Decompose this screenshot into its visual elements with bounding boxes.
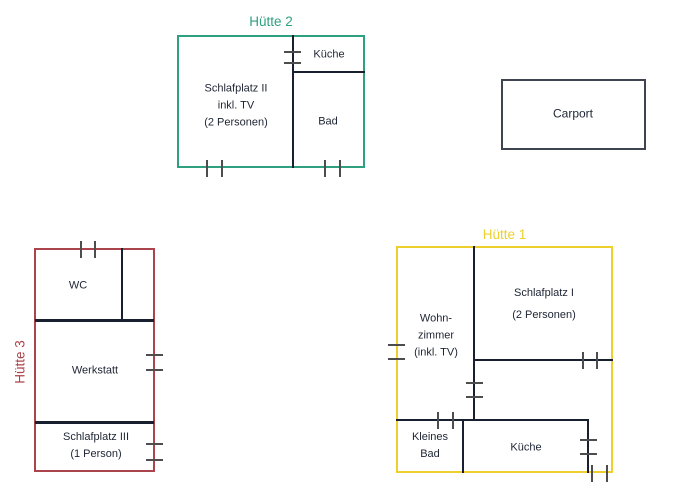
window-marker bbox=[146, 443, 163, 445]
window-marker bbox=[80, 241, 82, 258]
window-marker bbox=[284, 51, 301, 53]
hut1-room-kitchen-label: Küche bbox=[510, 440, 541, 457]
hut1-bath-wall-vertical bbox=[462, 419, 464, 473]
hut1-room-sleep-label: Schlafplatz I (2 Personen) bbox=[512, 282, 576, 326]
hut1-sleep-wall-horizontal bbox=[475, 359, 613, 361]
window-marker bbox=[596, 352, 598, 369]
carport-label: Carport bbox=[553, 106, 593, 123]
hut3-wall-horizontal-upper bbox=[35, 319, 154, 322]
hut2-title: Hütte 2 bbox=[177, 14, 365, 29]
window-marker bbox=[94, 241, 96, 258]
window-marker bbox=[146, 369, 163, 371]
window-marker bbox=[388, 358, 405, 360]
window-marker bbox=[284, 62, 301, 64]
window-marker bbox=[388, 344, 405, 346]
hut2-room-bath-label: Bad bbox=[318, 114, 338, 131]
hut3-wall-horizontal-lower bbox=[35, 421, 154, 424]
window-marker bbox=[591, 465, 593, 482]
window-marker bbox=[606, 465, 608, 482]
floor-plan-canvas: Hütte 2 Schlafplatz II inkl. TV (2 Perso… bbox=[0, 0, 700, 500]
window-marker bbox=[437, 412, 439, 429]
window-marker bbox=[206, 160, 208, 177]
window-marker bbox=[466, 382, 483, 384]
hut1-title: Hütte 1 bbox=[396, 227, 613, 242]
hut1-main-wall-vertical bbox=[473, 246, 475, 421]
hut1-room-living-label: Wohn- zimmer (inkl. TV) bbox=[414, 311, 458, 362]
hut1-kitchen-wall-vertical bbox=[587, 419, 589, 473]
window-marker bbox=[466, 396, 483, 398]
window-marker bbox=[146, 354, 163, 356]
window-marker bbox=[324, 160, 326, 177]
hut2-interior-wall-horizontal bbox=[293, 71, 365, 73]
hut3-room-workshop-label: Werkstatt bbox=[72, 363, 118, 380]
hut3-title: Hütte 3 bbox=[13, 340, 28, 384]
window-marker bbox=[580, 439, 597, 441]
hut1-room-small-bath-label: Kleines Bad bbox=[412, 429, 448, 463]
hut2-room-sleep-label: Schlafplatz II inkl. TV (2 Personen) bbox=[204, 81, 268, 132]
hut3-room-sleep-label: Schlafplatz III (1 Person) bbox=[63, 429, 129, 463]
hut2-interior-wall-vertical bbox=[292, 35, 294, 168]
hut3-room-wc-label: WC bbox=[69, 278, 87, 295]
hut2-room-kitchen-label: Küche bbox=[313, 47, 344, 64]
window-marker bbox=[452, 412, 454, 429]
window-marker bbox=[580, 453, 597, 455]
window-marker bbox=[146, 459, 163, 461]
window-marker bbox=[582, 352, 584, 369]
hut3-wc-wall-vertical bbox=[121, 248, 123, 321]
hut1-lower-wall-horizontal bbox=[396, 419, 589, 421]
window-marker bbox=[221, 160, 223, 177]
window-marker bbox=[339, 160, 341, 177]
